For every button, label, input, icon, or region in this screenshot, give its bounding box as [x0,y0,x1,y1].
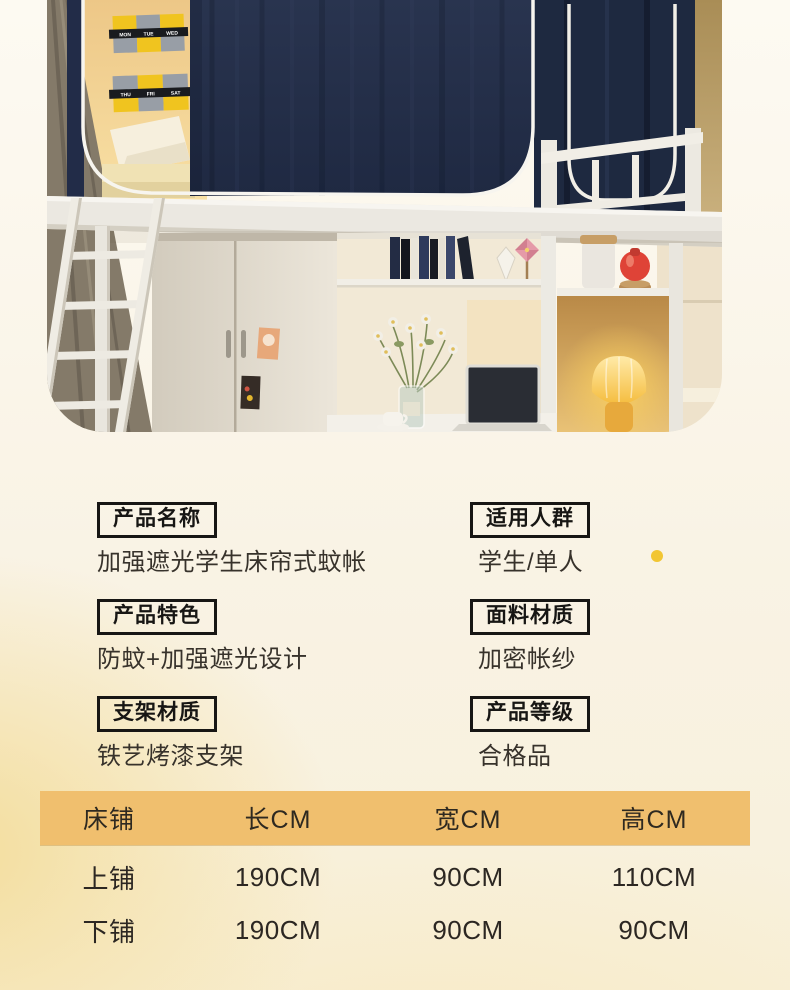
calendar-day-wed: WED [166,30,178,36]
calendar-day-mon: MON [119,32,131,38]
product-photo: MON TUE WED THU FRI SAT [47,0,722,432]
col-header-width: 宽CM [378,800,558,836]
spec-item-frame-material: 支架材质 铁艺烤漆支架 [97,696,427,772]
product-detail-page: MON TUE WED THU FRI SAT [0,0,790,990]
spec-label-text: 产品特色 [113,604,201,627]
blackout-curtain-main [190,0,533,196]
cell-width: 90CM [378,915,558,946]
wardrobe [152,233,337,432]
size-table-header: 床铺 长CM 宽CM 高CM [40,791,750,845]
laptop [452,366,552,431]
canister [580,235,617,289]
table-row-upper-bunk: 上铺 190CM 90CM 110CM [40,852,750,902]
spec-value: 加密帐纱 [470,645,790,675]
product-specs-left: 产品名称 加强遮光学生床帘式蚊帐 产品特色 防蚊+加强遮光设计 支架材质 铁艺烤… [97,502,427,793]
cell-height: 90CM [558,915,750,946]
spec-label: 适用人群 [470,502,590,538]
accent-dot [651,550,663,562]
calendar-day-tue: TUE [144,31,155,37]
spec-label-text: 产品等级 [486,701,574,724]
spec-label-text: 面料材质 [486,604,574,627]
wardrobe-handle [241,330,246,358]
spec-label: 产品特色 [97,599,217,635]
door-sticker-dark [240,376,260,410]
wardrobe-handle [226,330,231,358]
lamp-cabinet [557,296,681,432]
table-row-lower-bunk: 下铺 190CM 90CM 90CM [40,905,750,955]
spec-item-product-grade: 产品等级 合格品 [470,696,790,772]
col-header-length: 长CM [178,800,378,836]
spec-value: 铁艺烤漆支架 [97,742,427,772]
spec-value: 防蚊+加强遮光设计 [97,645,427,675]
cell-bed-name: 下铺 [40,912,178,949]
spec-label: 产品名称 [97,502,217,538]
calendar-day-sat: SAT [171,90,181,96]
spec-label: 面料材质 [470,599,590,635]
size-table: 床铺 长CM 宽CM 高CM 上铺 190CM 90CM 110CM 下铺 19… [40,791,750,955]
spec-value: 学生/单人 [470,548,790,578]
spec-label-text: 支架材质 [113,701,201,724]
spec-value: 合格品 [470,742,790,772]
spec-value: 加强遮光学生床帘式蚊帐 [97,548,427,578]
calendar-day-thu: THU [120,92,131,98]
red-vase [619,248,651,290]
cell-length: 190CM [178,862,378,893]
spec-item-product-feature: 产品特色 防蚊+加强遮光设计 [97,599,427,675]
cell-length: 190CM [178,915,378,946]
door-sticker-card [257,327,280,359]
cell-bed-name: 上铺 [40,859,178,896]
cell-height: 110CM [558,862,750,893]
calendar-day-fri: FRI [147,91,156,97]
spec-label: 产品等级 [470,696,590,732]
spec-label-text: 产品名称 [113,507,201,530]
spec-item-product-name: 产品名称 加强遮光学生床帘式蚊帐 [97,502,427,578]
spec-label: 支架材质 [97,696,217,732]
col-header-height: 高CM [558,800,750,836]
spec-item-target-users: 适用人群 学生/单人 [470,502,790,578]
col-header-bed: 床铺 [40,800,178,836]
spec-label-text: 适用人群 [486,507,574,530]
spec-item-fabric-material: 面料材质 加密帐纱 [470,599,790,675]
cell-width: 90CM [378,862,558,893]
product-specs-right: 适用人群 学生/单人 面料材质 加密帐纱 产品等级 合格品 [470,502,790,793]
